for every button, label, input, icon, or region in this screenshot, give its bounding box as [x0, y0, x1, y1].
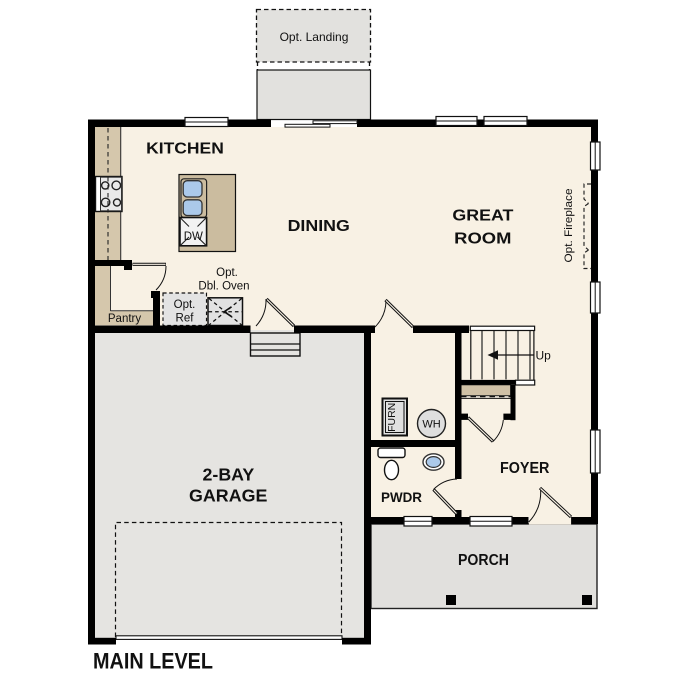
svg-text:2-BAY: 2-BAY: [203, 465, 255, 485]
svg-text:MAIN LEVEL: MAIN LEVEL: [93, 649, 213, 674]
svg-text:PWDR: PWDR: [381, 489, 422, 505]
svg-text:Ref: Ref: [176, 313, 195, 325]
svg-text:Opt. Landing: Opt. Landing: [280, 31, 349, 44]
svg-text:DW: DW: [184, 231, 203, 243]
svg-text:DINING: DINING: [288, 218, 350, 235]
svg-text:GREAT: GREAT: [452, 207, 514, 224]
svg-text:Up: Up: [536, 349, 552, 363]
svg-text:Dbl. Oven: Dbl. Oven: [198, 281, 249, 293]
svg-text:ROOM: ROOM: [454, 231, 511, 248]
svg-text:Pantry: Pantry: [108, 313, 141, 325]
svg-text:GARAGE: GARAGE: [189, 486, 267, 506]
svg-text:WH: WH: [422, 419, 440, 431]
svg-text:PORCH: PORCH: [458, 552, 509, 569]
svg-text:FOYER: FOYER: [500, 460, 550, 477]
svg-text:Opt. Fireplace: Opt. Fireplace: [563, 189, 575, 263]
svg-text:KITCHEN: KITCHEN: [146, 141, 224, 158]
svg-text:Opt.: Opt.: [174, 299, 196, 311]
svg-text:FURN: FURN: [386, 403, 398, 432]
svg-text:Opt.: Opt.: [216, 267, 238, 279]
